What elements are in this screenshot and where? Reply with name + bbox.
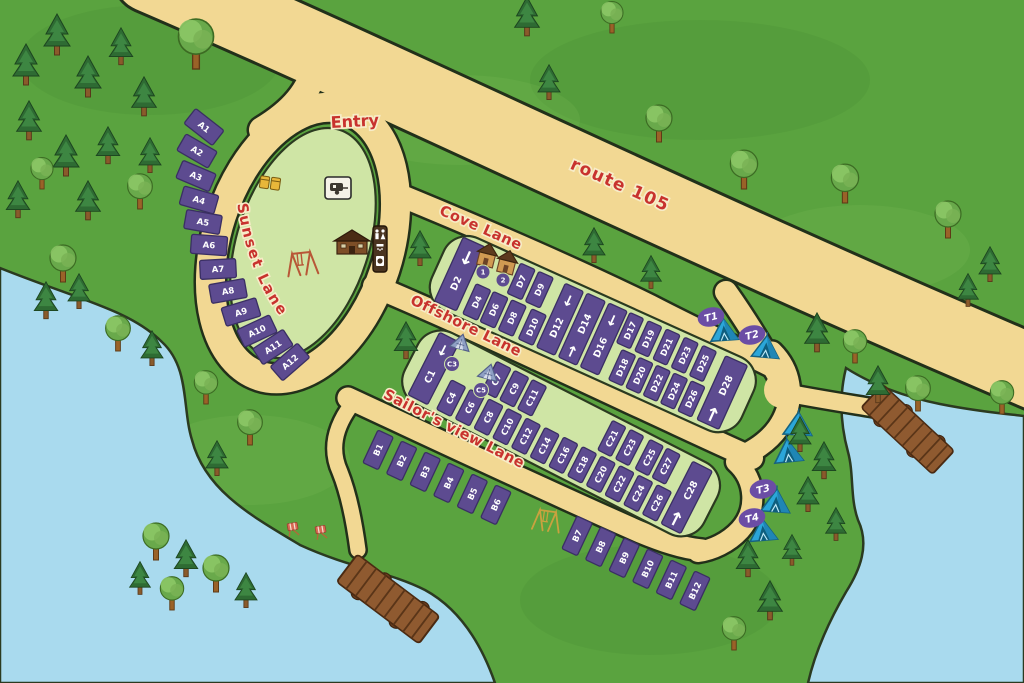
hut-1-marker: 1 xyxy=(476,265,490,279)
site-a6: A6 xyxy=(190,234,227,255)
site-a7: A7 xyxy=(200,259,237,280)
map-canvas: ↓ D2 ↓ D12 ↑ D14 ↓ D16 ↑ D28 D7 D9 D17 D… xyxy=(0,0,1024,683)
site-c3-marker: C3 xyxy=(445,357,460,372)
site-label: C3 xyxy=(447,361,457,369)
site-label: A7 xyxy=(212,265,225,276)
campground-map: ↓ D2 ↓ D12 ↑ D14 ↓ D16 ↑ D28 D7 D9 D17 D… xyxy=(0,0,1024,683)
entry-label: Entry xyxy=(330,110,380,132)
site-label: A6 xyxy=(202,241,215,252)
rv-caravan-sign-icon xyxy=(325,177,351,199)
hut-number: 2 xyxy=(501,277,506,285)
hut-number: 1 xyxy=(481,269,486,277)
restroom-shower-laundry-sign-icon xyxy=(373,226,387,272)
road-junction xyxy=(764,372,800,408)
site-c5-marker: C5 xyxy=(474,383,489,398)
hut-2-marker: 2 xyxy=(496,273,510,287)
site-label: C5 xyxy=(476,387,486,395)
